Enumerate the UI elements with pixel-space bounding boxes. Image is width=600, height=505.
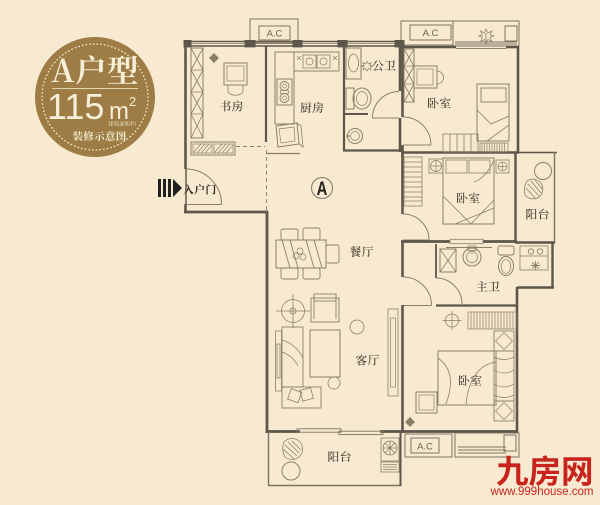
svg-text:A.C: A.C [423,28,439,39]
svg-text:A: A [317,178,328,199]
svg-text:2: 2 [129,94,136,109]
svg-text:A.C: A.C [267,29,283,40]
svg-text:www.999house.com: www.999house.com [490,486,594,498]
svg-text:A.C: A.C [417,442,433,453]
svg-text:115: 115 [47,86,104,127]
svg-text:m: m [109,98,129,125]
